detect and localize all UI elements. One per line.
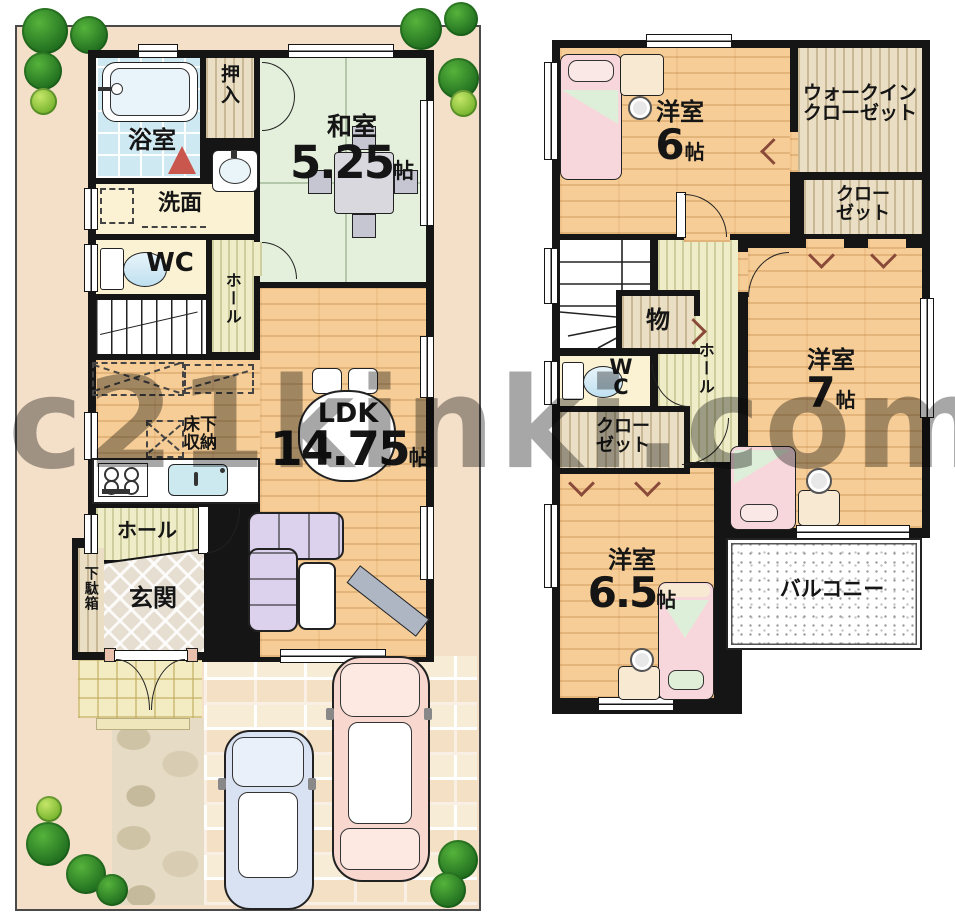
car-hood [340,663,420,717]
bed-pillow [740,504,778,522]
dashed-tick-line [142,226,206,228]
floor-plan-canvas: 浴室 押入 和室 5.25帖 洗面 WC ホール 床下 収納 LDK 14.75… [0,0,955,917]
stool [806,468,832,494]
storage-label: 物 [634,308,682,333]
car-mirror [326,708,334,720]
toilet-tank [100,248,124,290]
getabako-label: 下駄箱 [83,566,98,611]
kitchen-sink [168,464,228,496]
bedroom65-size: 6.5 [588,568,656,617]
window [544,504,558,588]
washitsu-size: 5.25 [290,136,393,189]
sink-dot [220,468,225,473]
window [84,412,98,460]
closet-mid-label: クロー ゼット [580,418,666,456]
car-mirror [218,778,226,790]
tree-icon [96,874,128,906]
bedroom65-label: 洋室 6.5帖 [572,548,692,613]
closet-top-label: クロー ゼット [820,186,906,224]
dashed-appliance-box [100,188,134,224]
floor-cushion [352,214,376,238]
tree-icon [22,8,68,54]
underfloor-storage-label: 床下 収納 [178,417,222,453]
car-rear [340,828,420,870]
window [544,361,558,405]
hall-2f-label: ホール [696,342,713,396]
stove-grill [102,489,130,494]
bedroom6-size: 6 [655,120,684,169]
sink-faucet-icon [194,472,198,486]
balcony-label: バルコニー [772,578,892,600]
car-mirror [424,708,432,720]
sofa [248,548,298,632]
window [544,248,558,304]
porch-step [96,718,190,730]
bedroom7-label: 洋室 7帖 [786,348,876,413]
nightstand [620,54,664,96]
oshiire-label: 押入 [218,64,238,106]
tree-icon [444,2,478,36]
window [646,34,732,48]
stone-path [112,718,204,905]
window [420,506,434,580]
window [420,100,434,226]
senmen-label: 洗面 [140,192,220,215]
basin-tap-icon [231,150,237,158]
genkan-label: 玄関 [118,586,188,611]
ldk-label: LDK 14.75帖 [270,400,426,473]
door-gap [738,252,748,292]
tree-icon [450,90,477,117]
bed-pillow [668,670,704,690]
tree-icon [400,8,442,50]
nightstand [798,490,840,526]
washitsu-size-row: 5.25帖 [282,140,422,185]
toilet-tank [562,362,584,400]
window [420,336,434,398]
hall-1f-upper-label: ホール [223,272,240,326]
ldk-unit: 帖 [409,446,430,470]
balcony-door [796,525,910,539]
ldk-size-row: 14.75帖 [270,428,426,473]
bedroom6-label: 洋室 6帖 [628,100,732,165]
bedroom6-unit: 帖 [685,140,705,164]
window [288,44,394,58]
washitsu-label: 和室 5.25帖 [282,114,422,185]
tree-icon [36,796,62,822]
door-gap [252,242,262,276]
wc-2f-label: WC [608,358,634,398]
ldk-size: 14.75 [270,422,409,477]
window [84,188,98,230]
tree-icon [70,16,108,54]
tree-icon [26,822,70,866]
bedroom6-size-row: 6帖 [628,125,732,165]
tree-icon [430,872,466,908]
wc-1f-label: WC [140,250,200,277]
car-roof [238,792,298,878]
stairs-1f [96,300,206,354]
stool [630,648,654,672]
bath-faucet-icon [111,83,123,95]
door-gap [790,132,798,172]
window [84,514,98,554]
window [138,44,178,58]
car-mirror [308,778,316,790]
bedroom65-size-row: 6.5帖 [572,573,692,613]
car-roof [348,722,412,824]
window [84,244,98,292]
window [920,298,934,418]
tree-icon [24,52,62,90]
car-hood [232,737,304,787]
bedroom7-unit: 帖 [836,388,856,412]
bedroom7-size: 7 [806,368,835,417]
hall-1f-lower-label: ホール [112,520,182,541]
wic-label: ウォークイン クローゼット [796,84,924,124]
tree-icon [30,88,57,115]
coffee-table [298,562,336,630]
wash-basin-bowl [219,158,251,184]
washitsu-unit: 帖 [393,159,414,183]
bath-label: 浴室 [120,128,184,153]
bed-pillow [568,60,614,82]
bedroom65-unit: 帖 [656,588,676,612]
bedroom7-size-row: 7帖 [786,373,876,413]
window [544,62,558,160]
